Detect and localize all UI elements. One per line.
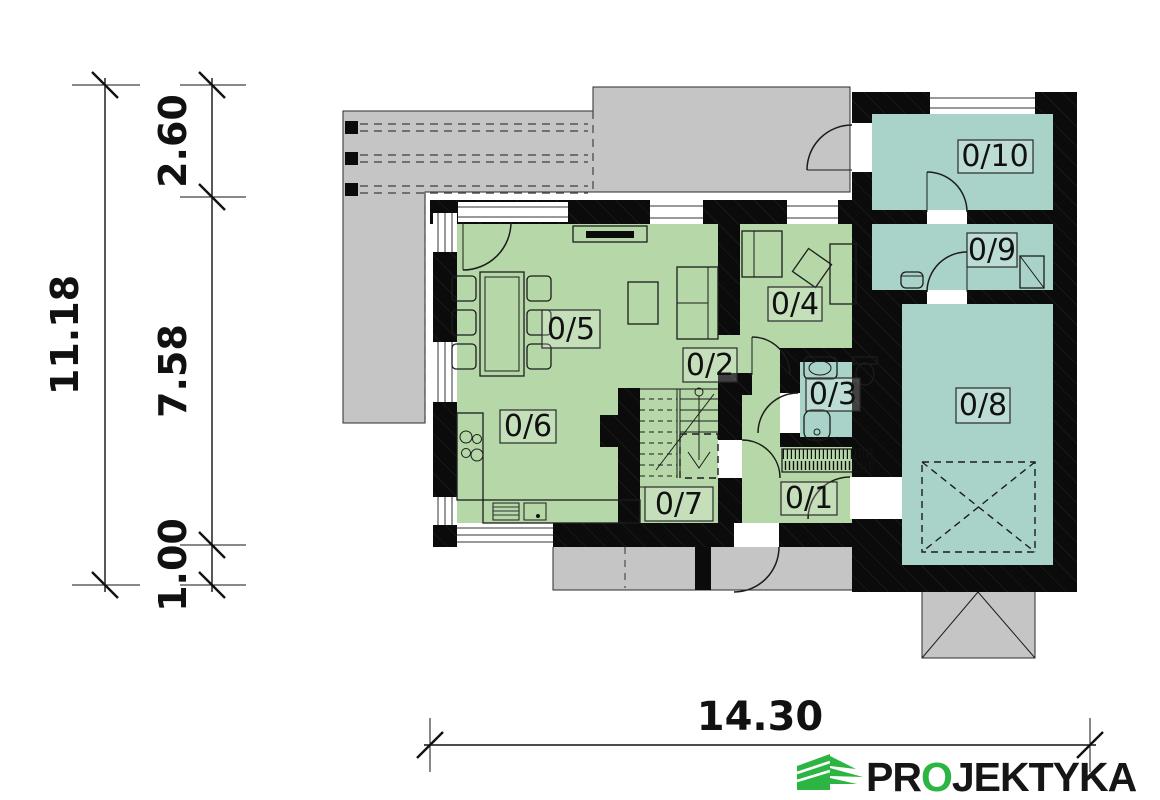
logo-building-icon	[797, 754, 863, 790]
dimension-left-segments: 2.60 7.58 1.00	[151, 72, 246, 612]
svg-text:0/9: 0/9	[968, 233, 1016, 268]
pergola-posts	[345, 121, 358, 196]
room-label-0-10: 0/10	[958, 139, 1033, 174]
wardrobe	[782, 449, 872, 472]
svg-text:0/1: 0/1	[785, 481, 833, 516]
svg-text:0/6: 0/6	[504, 409, 552, 444]
room-label-0-6: 0/6	[500, 409, 556, 444]
window-living-north-1	[458, 202, 568, 222]
driveway-apron	[922, 590, 1035, 658]
tv	[586, 231, 634, 238]
room-label-0-1: 0/1	[781, 481, 837, 516]
room-label-0-5: 0/5	[542, 310, 600, 348]
svg-text:0/5: 0/5	[547, 312, 595, 347]
dimension-left-total: 11.18	[43, 72, 140, 598]
svg-text:0/4: 0/4	[771, 287, 819, 322]
room-label-0-4: 0/4	[768, 287, 822, 322]
window-kitchen-south	[457, 523, 553, 547]
svg-text:0/10: 0/10	[961, 139, 1028, 174]
floor-plan-page: 0/1 0/2 0/3 0/4 0/5 0/6 0/7 0/8	[0, 0, 1160, 800]
svg-text:0/8: 0/8	[959, 388, 1007, 423]
logo-text-suffix: JEKTYKA	[952, 754, 1137, 800]
window-office-north	[787, 200, 838, 224]
window-kitchen-west	[433, 497, 457, 525]
dimension-total-height: 11.18	[43, 275, 87, 395]
room-label-0-7: 0/7	[645, 487, 713, 522]
window-living-west-1	[433, 213, 457, 252]
room-label-0-3: 0/3	[806, 377, 860, 412]
svg-text:0/3: 0/3	[809, 377, 857, 412]
svg-text:0/7: 0/7	[655, 487, 703, 522]
svg-text:0/2: 0/2	[686, 348, 734, 383]
room-label-0-9: 0/9	[967, 233, 1017, 268]
room-label-0-8: 0/8	[956, 388, 1010, 423]
logo-wordmark: PROJEKTYKA	[866, 754, 1137, 800]
entry-walkway	[553, 545, 878, 590]
room-label-0-2: 0/2	[683, 348, 737, 383]
dimension-total-width: 14.30	[697, 694, 824, 740]
logo-text-accent: O	[921, 754, 952, 800]
window-vestibule-north	[930, 92, 1035, 114]
floor-plan-drawing: 0/1 0/2 0/3 0/4 0/5 0/6 0/7 0/8	[0, 0, 1160, 800]
dimension-segment-top: 2.60	[151, 94, 195, 188]
logo-text-prefix: PR	[866, 754, 921, 800]
window-living-west-2	[433, 342, 457, 402]
dimension-segment-bottom: 1.00	[151, 518, 195, 612]
window-living-north-2	[650, 200, 703, 224]
dimension-segment-middle: 7.58	[151, 324, 195, 418]
logo: PROJEKTYKA	[797, 754, 1137, 800]
